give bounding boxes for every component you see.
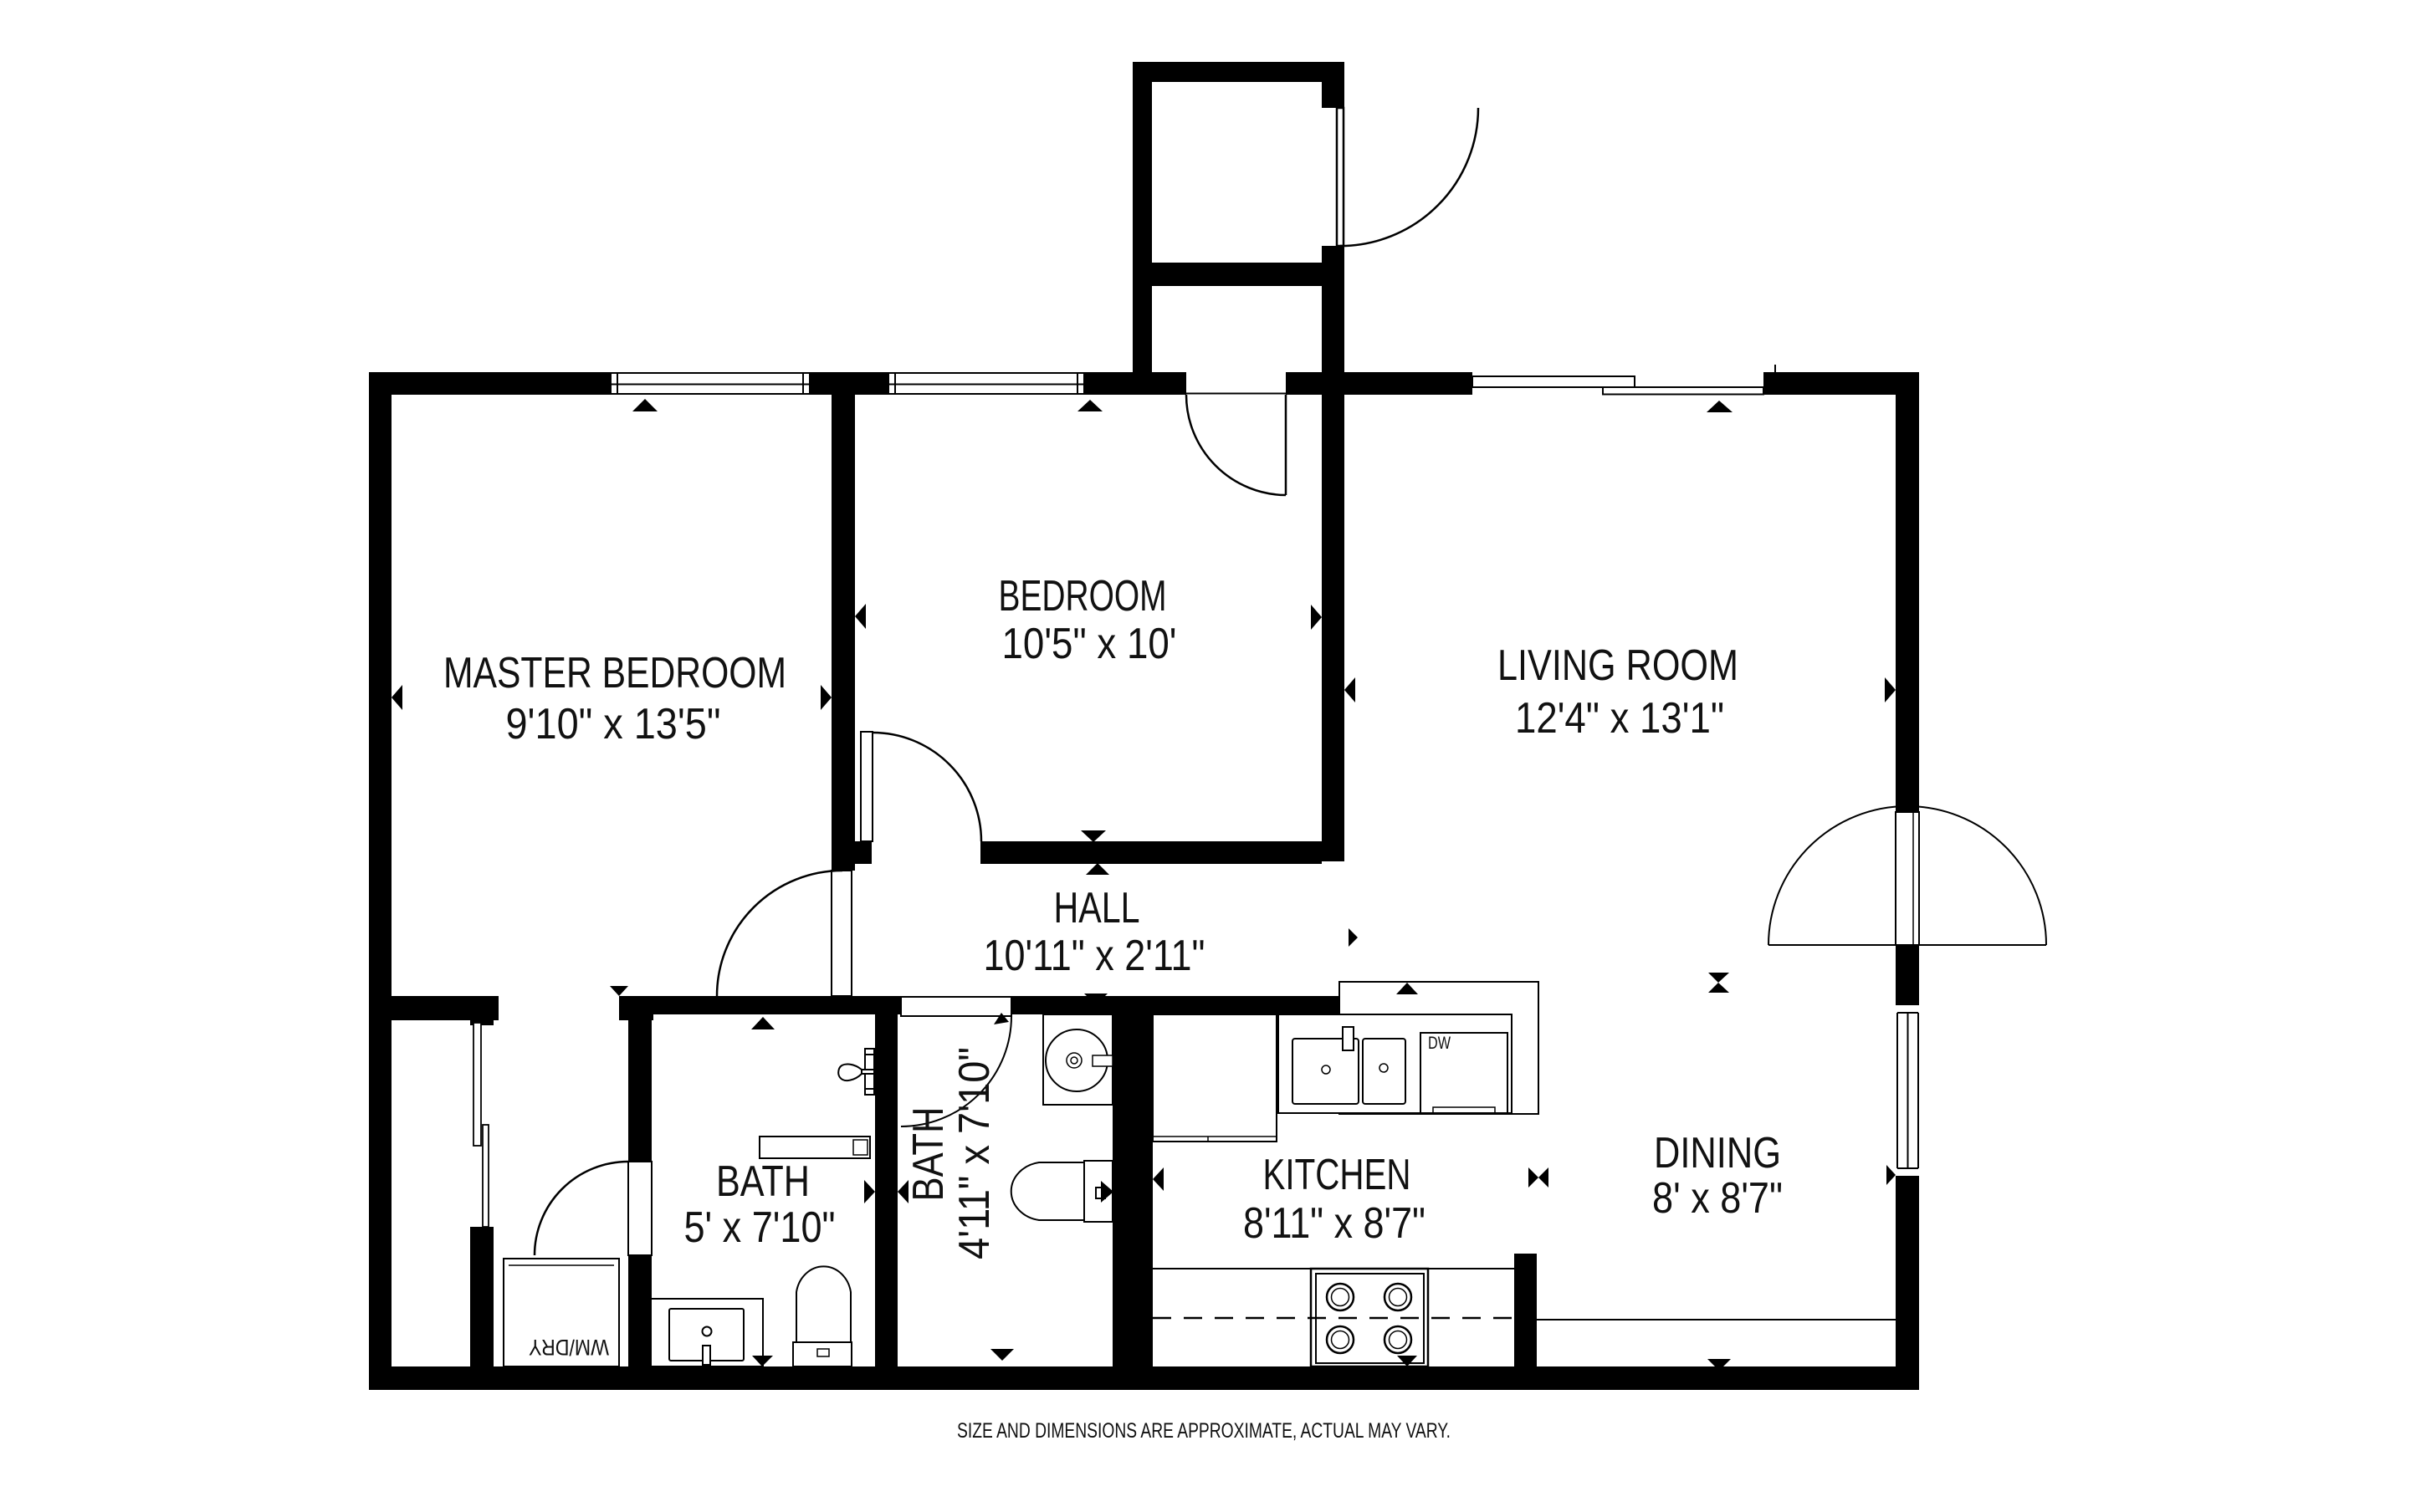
svg-text:LIVING ROOM: LIVING ROOM [1497,641,1738,690]
svg-text:9'10" x 13'5": 9'10" x 13'5" [506,700,721,748]
svg-text:SIZE AND DIMENSIONS ARE APPROX: SIZE AND DIMENSIONS ARE APPROXIMATE, ACT… [957,1419,1451,1443]
svg-text:DINING: DINING [1654,1129,1781,1177]
svg-text:MASTER BEDROOM: MASTER BEDROOM [443,649,786,697]
svg-text:10'5" x 10': 10'5" x 10' [1002,620,1177,668]
svg-text:KITCHEN: KITCHEN [1263,1151,1411,1199]
svg-text:4'11" x 7'10": 4'11" x 7'10" [950,1047,999,1259]
svg-text:10'11" x 2'11": 10'11" x 2'11" [984,932,1205,980]
svg-text:DW: DW [1428,1034,1451,1053]
svg-text:BEDROOM: BEDROOM [999,572,1167,621]
svg-text:WM/DRY: WM/DRY [529,1335,609,1360]
svg-text:BATH: BATH [904,1107,953,1202]
svg-text:12'4" x 13'1": 12'4" x 13'1" [1515,694,1724,743]
svg-text:5' x 7'10": 5' x 7'10" [684,1203,836,1252]
svg-text:HALL: HALL [1054,884,1140,932]
svg-text:BATH: BATH [716,1157,810,1206]
svg-text:8'11" x 8'7": 8'11" x 8'7" [1243,1199,1425,1248]
svg-text:8' x 8'7": 8' x 8'7" [1652,1174,1783,1223]
